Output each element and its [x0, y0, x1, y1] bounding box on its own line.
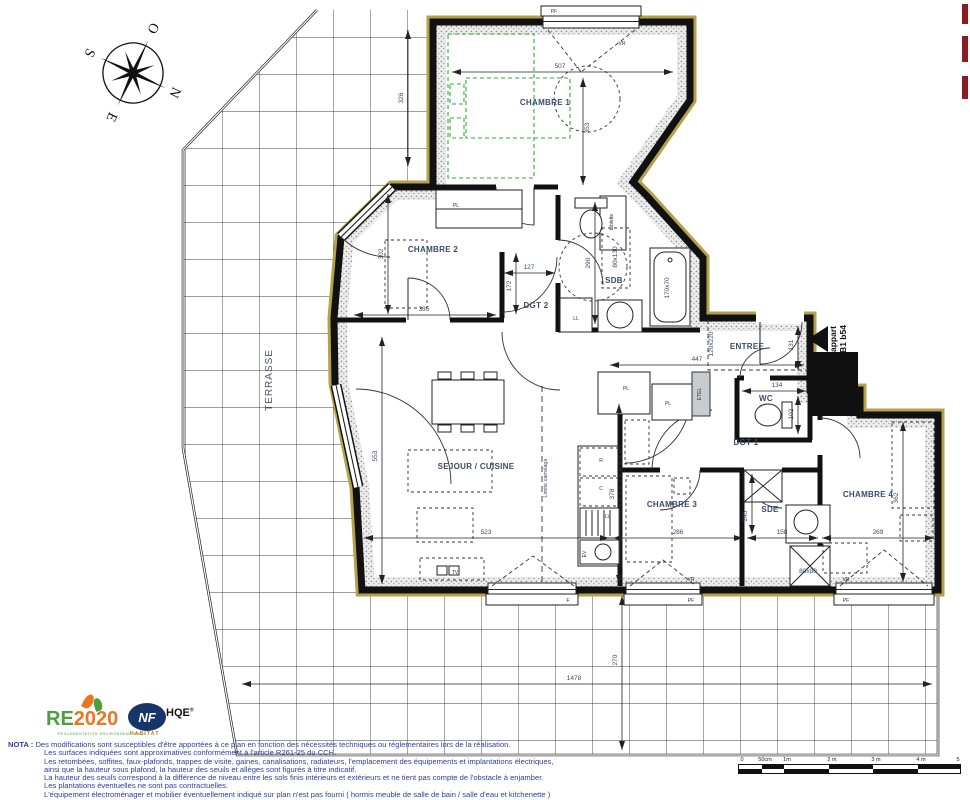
label-pl-hall1: PL — [623, 386, 629, 392]
apartment-tag-line2: B1 b54 — [838, 325, 848, 353]
closet-pl-1 — [598, 372, 650, 414]
re2020-year: 2020 — [74, 708, 119, 730]
dim-terrace-south-height: 270 — [612, 654, 619, 665]
scale-tick: 4 m — [916, 757, 925, 763]
dim-bathtub: 170x70 — [664, 277, 671, 299]
dim-sde-height: 245 — [742, 510, 749, 521]
dim-ch3-width: 286 — [673, 529, 684, 536]
dim-sejour-height: 553 — [372, 450, 379, 461]
dim-entry-door: 120x220 — [708, 331, 715, 356]
label-vr-ch3: VR — [688, 577, 695, 583]
nota-line: L'équipement électroménager et mobilier … — [8, 791, 738, 799]
habitat-text: HABITAT — [130, 731, 190, 737]
room-label-chambre1: CHAMBRE 1 — [520, 98, 571, 107]
dining-table — [432, 380, 504, 424]
label-etel: ETEL — [697, 388, 703, 401]
label-pf-ch4: PF — [843, 598, 849, 604]
scale-tick: 50cm — [758, 757, 771, 763]
room-label-entree: ENTREE — [730, 342, 765, 351]
compass-rose: N E S O — [60, 0, 204, 143]
dim-ch3-height: 378 — [609, 488, 616, 499]
label-vr-ch4: VR — [843, 577, 850, 583]
dim-shower: 80x80 — [799, 568, 817, 575]
dim-terrace-nw: 326 — [398, 92, 405, 103]
dim-sdb-unit: 80x130 — [612, 246, 619, 268]
scale-ticks: 0 50cm 1m 2 m 3 m 4 m 5 m — [738, 757, 964, 764]
dim-dgt2-height: 172 — [506, 280, 513, 291]
label-tv: TV — [452, 570, 459, 576]
entry-door-gap — [756, 311, 804, 324]
floor-plan-sheet: 507 353 326 302 335 127 172 290 80x130 1… — [0, 0, 970, 800]
label-pf-ch3: PF — [688, 598, 694, 604]
label-tablette: tablette — [609, 214, 615, 231]
dim-wc-height: 102 — [788, 408, 795, 419]
dim-sde-width: 158 — [777, 529, 788, 536]
dim-terrace-south-width: 1478 — [567, 675, 582, 682]
dim-ch2-height: 302 — [378, 248, 385, 259]
scale-tick: 2 m — [827, 757, 836, 763]
compass-north: N — [165, 84, 183, 100]
label-ev: EV — [582, 550, 588, 557]
scale-bar: 0 50cm 1m 2 m 3 m 4 m 5 m — [738, 757, 964, 774]
hqe-text: HQE — [166, 707, 190, 719]
scale-tick: 1m — [783, 757, 791, 763]
nf-hqe-logo: NF HQE® HABITAT — [128, 699, 198, 739]
room-label-dgt2: DGT 2 — [523, 301, 548, 310]
label-cooktop-c: C — [599, 486, 603, 492]
label-limite-carrelage: Limite carrelage — [543, 458, 549, 497]
toilet-sdb-bowl — [580, 210, 602, 238]
dim-ch2-width: 335 — [419, 306, 430, 313]
sdb-vanity — [598, 300, 642, 332]
dim-ch1-height: 353 — [584, 122, 591, 133]
room-label-sdb: SDB — [605, 276, 623, 285]
room-label-sejour: SEJOUR / CUISINE — [438, 462, 515, 471]
scale-bar-graphic — [738, 764, 961, 774]
registered-mark: ® — [190, 707, 194, 713]
room-label-dgt1: DGT 1 — [733, 438, 758, 447]
dim-entree-height: 131 — [788, 339, 795, 350]
nf-badge-icon: NF — [128, 703, 166, 731]
label-ll: LL — [573, 316, 579, 322]
apartment-tag-line1: appart — [828, 326, 838, 352]
compass-star-icon — [85, 25, 181, 121]
room-label-sde: SDE — [761, 505, 779, 514]
dim-ch4-width: 269 — [873, 529, 884, 536]
label-pf-top: PF — [551, 9, 557, 15]
dim-sdb-height: 290 — [585, 257, 592, 268]
label-pl-ch2: PL — [453, 203, 459, 209]
re2020-re: RE — [46, 708, 74, 730]
compass-west: O — [143, 20, 161, 36]
nf-text: NF — [138, 710, 155, 725]
washing-machine — [560, 298, 592, 332]
window-sejour-south-sill — [486, 594, 578, 605]
dim-ch1-width: 507 — [555, 63, 566, 70]
label-f-window: F — [566, 598, 569, 604]
label-lv: LV — [605, 514, 611, 520]
scale-tick: 0 — [740, 757, 743, 763]
compass-south: S — [81, 46, 98, 59]
label-vr-top: VR — [619, 41, 626, 47]
dim-entry-width: 447 — [692, 356, 703, 363]
dim-wc-width: 134 — [772, 382, 783, 389]
sde-vanity — [786, 505, 830, 543]
nota-title: NOTA : — [8, 740, 33, 749]
dim-ch4-height: 362 — [893, 492, 900, 503]
structural-core — [812, 352, 858, 416]
room-label-wc: WC — [759, 394, 773, 403]
toilet-wc-bowl — [755, 404, 781, 426]
room-label-chambre4: CHAMBRE 4 — [843, 490, 894, 499]
toilet-sdb-tank — [575, 198, 607, 208]
compass-east: E — [102, 110, 119, 124]
floor-plan-drawing: 507 353 326 302 335 127 172 290 80x130 1… — [0, 0, 970, 800]
label-fridge-r: R — [599, 458, 603, 464]
room-label-chambre3: CHAMBRE 3 — [647, 500, 698, 509]
label-pl-hall2: PL — [665, 401, 671, 407]
dim-dgt2-width: 127 — [524, 264, 535, 271]
dim-sejour-width: 523 — [481, 529, 492, 536]
closet-pl-2 — [652, 384, 692, 420]
nota-block: NOTA : Des modifications sont susceptibl… — [8, 741, 738, 799]
room-label-terrasse: TERRASSE — [264, 349, 275, 411]
red-edge-marks — [962, 4, 968, 99]
room-label-chambre2: CHAMBRE 2 — [408, 245, 459, 254]
scale-tick: 3 m — [871, 757, 880, 763]
